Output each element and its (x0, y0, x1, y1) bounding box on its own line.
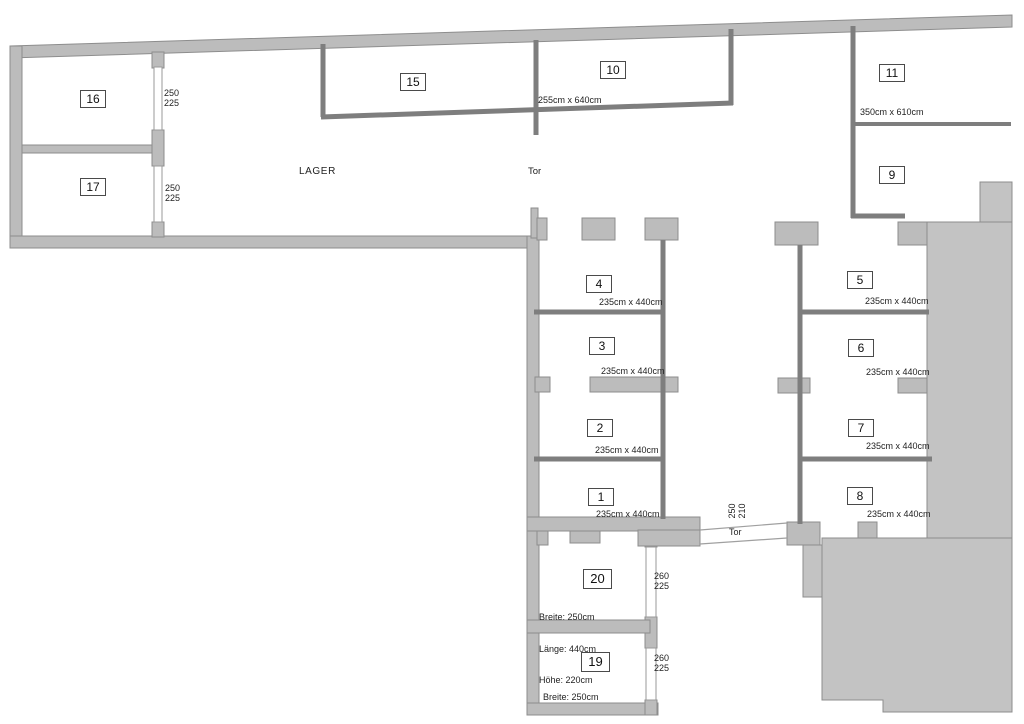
dim-room-4: 235cm x 440cm (599, 297, 663, 307)
pillar (582, 218, 615, 240)
gate-lines (700, 523, 787, 544)
door-dim-line: 225 (164, 98, 179, 108)
door-dim-line: 250 (164, 88, 179, 98)
dim-hall-10: 255cm x 640cm (538, 95, 602, 105)
blocked-notch (803, 545, 822, 597)
room-label-7: 7 (848, 419, 874, 437)
pillar (787, 522, 820, 545)
room-label-20: 20 (583, 569, 612, 589)
pillar (537, 218, 547, 240)
mid-left-wall (527, 236, 539, 715)
room-label-17: 17 (80, 178, 106, 196)
spec-breite: Breite: 250cm (543, 692, 600, 703)
dim-room-6: 235cm x 440cm (866, 367, 930, 377)
room-label-3: 3 (589, 337, 615, 355)
door-dim-room16: 250225 (164, 89, 179, 108)
room-label-1: 1 (588, 488, 614, 506)
dim-room-3: 235cm x 440cm (601, 366, 665, 376)
door-wall-seg (152, 222, 164, 237)
floorplan-canvas: 16 17 15 10 11 9 4 3 2 1 5 6 7 8 20 19 L… (0, 0, 1024, 724)
pillar (645, 218, 678, 240)
pillar (858, 522, 877, 538)
pillar (898, 378, 930, 393)
blocked-block-bottom (822, 538, 1012, 712)
blocked-strip-top (980, 182, 1012, 222)
pillar (638, 530, 700, 546)
room-label-5: 5 (847, 271, 873, 289)
dim-room-5: 235cm x 440cm (865, 296, 929, 306)
gate-line (700, 523, 787, 530)
spec-laenge: Länge: 440cm (539, 644, 596, 655)
dim-room-1: 235cm x 440cm (596, 509, 660, 519)
pillar (778, 378, 810, 393)
door-dim-line: 225 (654, 581, 669, 591)
gate-line (700, 538, 787, 544)
gate-dim-line: 250 (727, 503, 737, 518)
door-dim-line: 260 (654, 571, 669, 581)
room-label-15: 15 (400, 73, 426, 91)
room-label-2: 2 (587, 419, 613, 437)
lager-bottom-wall (10, 236, 530, 248)
pillar (570, 531, 600, 543)
room-label-11: 11 (879, 64, 905, 82)
room-label-4: 4 (586, 275, 612, 293)
tor-label-gate: Tor (729, 527, 742, 537)
door-dim-line: 225 (165, 193, 180, 203)
wall-divider-16-17 (22, 145, 154, 153)
door-dim-room17: 250225 (165, 184, 180, 203)
dim-room-8: 235cm x 440cm (867, 509, 931, 519)
door-wall-seg (152, 52, 164, 68)
door-room16 (154, 67, 162, 130)
door-dim-line: 250 (165, 183, 180, 193)
pillar (537, 531, 548, 545)
door-wall-seg (645, 700, 657, 715)
gate-dim-line: 210 (737, 503, 747, 518)
door-dim-line: 260 (654, 653, 669, 663)
door-dim-room20: 260225 (654, 572, 669, 591)
room-label-9: 9 (879, 166, 905, 184)
lager-label: LAGER (299, 166, 336, 177)
spec-block-room19: Breite: 250cm Länge: 440cm Höhe: 220cm (543, 671, 600, 724)
tor-label-top: Tor (528, 166, 541, 177)
dim-hall-11: 350cm x 610cm (860, 107, 924, 117)
room1-bottom-wall (527, 517, 700, 531)
pillar (775, 222, 818, 245)
room-label-16: 16 (80, 90, 106, 108)
room-label-8: 8 (847, 487, 873, 505)
blocked-strip (927, 222, 1012, 538)
door-dim-line: 225 (654, 663, 669, 673)
dim-room-7: 235cm x 440cm (866, 441, 930, 451)
dim-room-2: 235cm x 440cm (595, 445, 659, 455)
room-label-10: 10 (600, 61, 626, 79)
left-outer-wall (10, 46, 22, 248)
room15-10-bottom-wall (321, 103, 733, 117)
door-wall-seg (152, 130, 164, 166)
room-label-6: 6 (848, 339, 874, 357)
pillar (535, 377, 550, 392)
door-room17 (154, 166, 162, 222)
gate-dim-label: 250210 (727, 499, 747, 523)
door-dim-room19: 260225 (654, 654, 669, 673)
spec-breite: Breite: 250cm (539, 612, 596, 623)
